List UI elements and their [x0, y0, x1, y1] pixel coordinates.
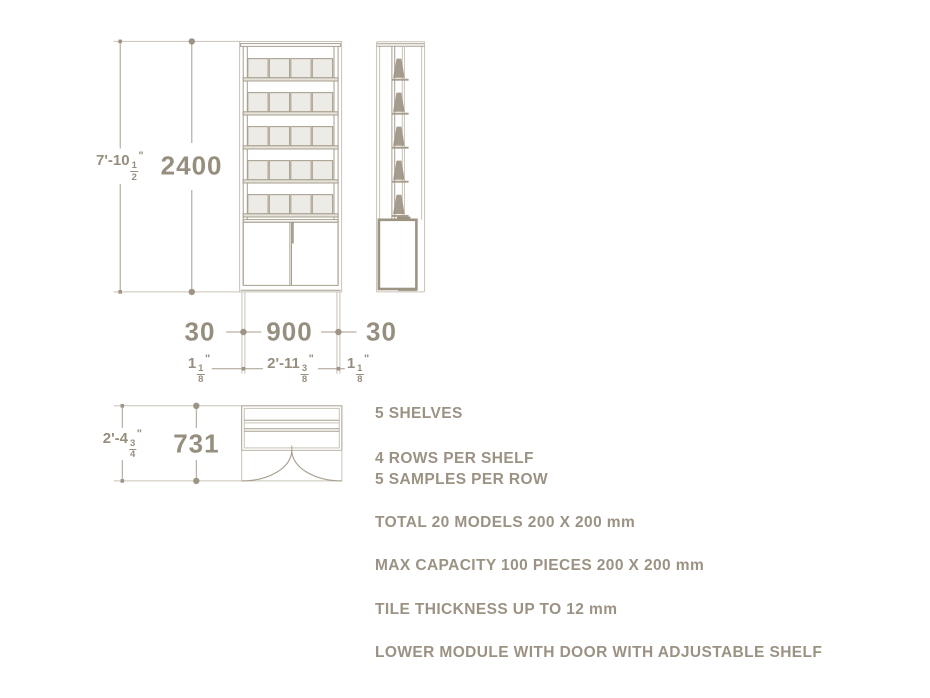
width-imperial-label: 2'-1138" [265, 353, 316, 385]
tile-row [243, 127, 338, 149]
plan-view [242, 406, 342, 481]
note-total-models: TOTAL 20 MODELS 200 X 200 mm [375, 514, 635, 532]
frame-right-metric-label: 30 [363, 317, 400, 348]
note-rows-per-shelf: 4 ROWS PER SHELF [375, 450, 534, 468]
frame-left-metric-label: 30 [182, 317, 219, 348]
frame-left-imperial-label: 118" [186, 353, 212, 385]
depth-metric-label: 731 [170, 428, 222, 459]
height-imperial-label: 7'-1012" [94, 150, 146, 182]
tile-row [243, 195, 338, 217]
tile-row [243, 93, 338, 115]
height-metric-label: 2400 [158, 151, 226, 182]
door-swing-arc-right [292, 450, 342, 481]
door-handle [292, 222, 294, 243]
depth-imperial-label: 2'-434" [101, 428, 144, 460]
note-shelves: 5 SHELVES [375, 405, 463, 423]
drawing-linework [0, 0, 930, 698]
note-tile-thickness: TILE THICKNESS UP TO 12 mm [375, 601, 617, 619]
tile-row [243, 161, 338, 183]
note-max-capacity: MAX CAPACITY 100 PIECES 200 X 200 mm [375, 557, 704, 575]
lower-module-side [379, 220, 417, 289]
tile-row [243, 59, 338, 81]
side-elevation-view [377, 42, 425, 292]
note-lower-module: LOWER MODULE WITH DOOR WITH ADJUSTABLE S… [375, 644, 822, 662]
lower-module-doors [243, 222, 338, 285]
width-metric-label: 900 [263, 317, 315, 348]
door-swing-arc-left [242, 450, 292, 481]
frame-right-imperial-label: 118" [345, 353, 371, 385]
note-samples-per-row: 5 SAMPLES PER ROW [375, 471, 548, 489]
top-panel [241, 44, 341, 47]
tile-display-drawing: 7'-1012" 2400 30 900 30 118" 2'-1138" 11… [0, 0, 930, 698]
